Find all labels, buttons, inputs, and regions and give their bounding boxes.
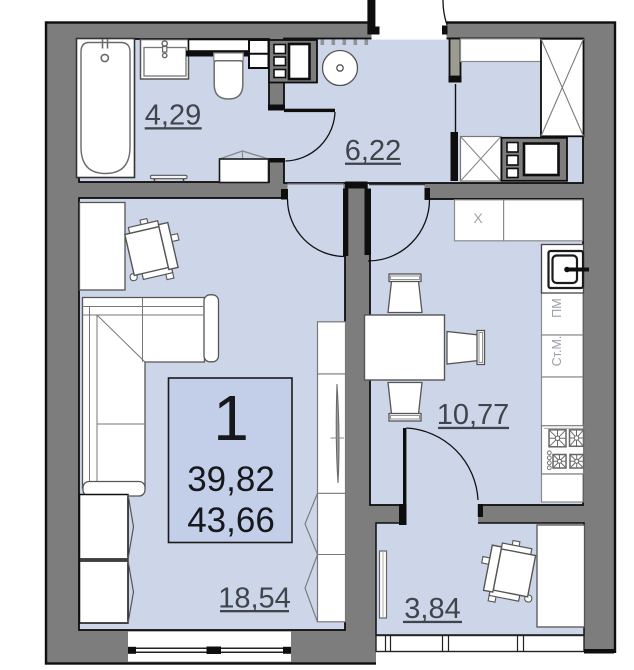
svg-text:18,54: 18,54 — [218, 583, 291, 615]
svg-text:3,84: 3,84 — [404, 593, 460, 625]
svg-text:ПМ: ПМ — [550, 298, 564, 317]
svg-text:1: 1 — [213, 382, 249, 454]
svg-text:6,22: 6,22 — [345, 135, 401, 167]
svg-text:43,66: 43,66 — [187, 501, 275, 540]
svg-text:10,77: 10,77 — [437, 399, 510, 431]
svg-text:39,82: 39,82 — [187, 460, 275, 499]
svg-text:4,29: 4,29 — [145, 100, 201, 132]
svg-text:Ст.М.: Ст.М. — [550, 336, 564, 367]
svg-text:X: X — [473, 210, 483, 226]
